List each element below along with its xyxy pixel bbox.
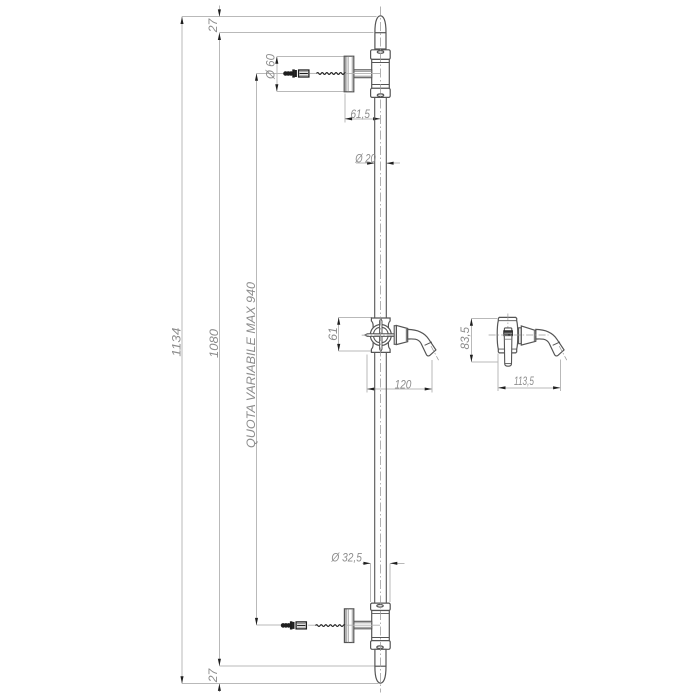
svg-text:27: 27 <box>208 18 220 33</box>
svg-text:120: 120 <box>395 379 412 391</box>
svg-text:83,5: 83,5 <box>460 326 472 349</box>
svg-text:Ø 20: Ø 20 <box>354 153 376 165</box>
svg-text:61,5: 61,5 <box>350 109 370 121</box>
svg-text:113,5: 113,5 <box>514 376 534 388</box>
svg-text:Ø 60: Ø 60 <box>266 53 278 80</box>
svg-text:1134: 1134 <box>172 328 184 357</box>
svg-text:QUOTA VARIABILE MAX 940: QUOTA VARIABILE MAX 940 <box>246 281 258 448</box>
svg-text:61: 61 <box>328 327 340 341</box>
svg-text:27: 27 <box>208 668 220 683</box>
svg-text:1080: 1080 <box>209 328 221 358</box>
svg-text:Ø 32,5: Ø 32,5 <box>330 553 362 565</box>
